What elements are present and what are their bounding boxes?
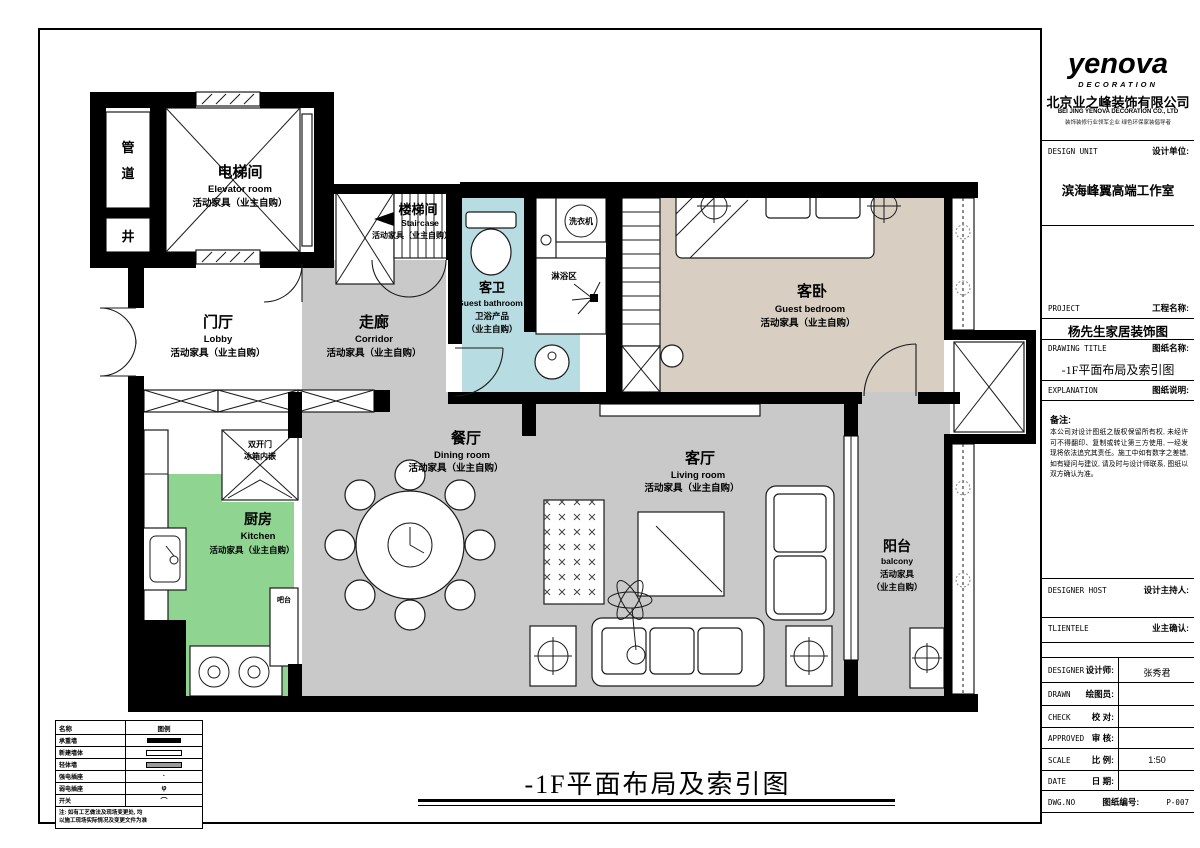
check-label-cn: 校 对: [1092, 711, 1114, 723]
label-washer: 洗衣机 [569, 216, 593, 226]
dwg-no-value: P-007 [1166, 798, 1189, 807]
note-text: 本公司对设计图纸之版权保留所有权, 未经许可不得翻印、复制或转让第三方使用, 一… [1050, 428, 1188, 481]
designer-label-en: DESIGNER [1048, 666, 1084, 675]
label-lobby-cn: 门厅 [203, 313, 233, 331]
balcony-unit [910, 628, 944, 688]
label-living-note: 活动家具（业主自购） [644, 482, 739, 494]
label-balcony-en: balcony [881, 556, 913, 566]
company-logo-sub: DECORATION [1042, 80, 1194, 89]
legend-swatch-glyph: φ [161, 785, 166, 792]
window-band-lower [952, 444, 974, 694]
drawing-title-label-en: DRAWING TITLE [1048, 344, 1107, 353]
legend-swatch-solid [147, 738, 181, 743]
elevator-door-top [196, 92, 260, 106]
approved-row: APPROVED 审 核: [1048, 732, 1114, 744]
floor-plan-svg: 管 道 井 电梯间 Elevator room 活动家具（业主自购） 楼梯间 S… [38, 28, 1040, 770]
label-balcony-note2: （业主自购） [871, 582, 922, 592]
drawn-label-en: DRAWN [1048, 690, 1071, 699]
clientele-row: TLIENTELE 业主确认: [1048, 622, 1189, 634]
label-stair-note: 活动家具（业主自购） [372, 230, 452, 240]
label-kitchen-cn: 厨房 [244, 511, 272, 527]
approved-label-en: APPROVED [1048, 734, 1084, 743]
company-name-en: BEI JING YENOVA DECORATION CO., LTD [1042, 109, 1194, 115]
designer-host-row: DESIGNER HOST 设计主持人: [1048, 584, 1189, 596]
drawing-title-value: -1F平面布局及索引图 [1042, 361, 1194, 378]
project-value: 杨先生家居装饰图 [1042, 321, 1194, 340]
approved-label-cn: 审 核: [1092, 732, 1114, 744]
legend-row: 开关 ⌒ [56, 794, 202, 806]
scale-label-cn: 比 例: [1092, 754, 1114, 766]
legend-header-symbol: 图例 [158, 723, 171, 733]
dwg-no-label-en: DWG.NO [1048, 798, 1075, 807]
legend-row: 承重墙 [56, 734, 202, 746]
designer-host-label-cn: 设计主持人: [1144, 584, 1189, 596]
elevator-door-bottom [196, 250, 260, 264]
project-label-en: PROJECT [1048, 304, 1080, 313]
scale-row: SCALE 比 例: [1048, 754, 1114, 766]
title-block: yenova DECORATION 北京业之峰装饰有限公司 BEI JING Y… [1040, 28, 1194, 824]
sheet-title-underline-thick [418, 799, 895, 802]
date-label-en: DATE [1048, 777, 1066, 786]
label-shaft-1: 管 [121, 140, 134, 155]
label-shaft-3: 井 [121, 229, 134, 244]
label-shower: 淋浴区 [551, 271, 577, 281]
legend-table: 名称 图例 承重墙 新建墙体 轻体墙 强电插座 · 弱电插座 φ 开关 ⌒ 注:… [55, 720, 203, 829]
label-elevator-note: 活动家具（业主自购） [192, 197, 287, 209]
legend-swatch-outline [146, 750, 182, 756]
legend-note-line1: 注: 如有工艺做法及现场变更处, 均 [59, 809, 199, 817]
label-bedroom-cn: 客卧 [796, 282, 827, 300]
speaker [530, 626, 576, 686]
label-stair-cn: 楼梯间 [398, 202, 437, 217]
clientele-label-en: TLIENTELE [1048, 624, 1089, 633]
legend-label: 新建墙体 [59, 748, 83, 757]
sheet-title: -1F平面布局及索引图 [420, 764, 895, 801]
label-kitchen-en: Kitchen [241, 531, 276, 542]
design-unit-row: DESIGN UNIT 设计单位: [1048, 145, 1189, 157]
label-lobby-en: Lobby [204, 334, 233, 345]
legend-swatch-gray [146, 762, 182, 768]
project-row: PROJECT 工程名称: [1048, 302, 1189, 314]
dwg-no-label-cn: 图纸编号: [1102, 796, 1139, 808]
label-living-cn: 客厅 [684, 449, 715, 467]
legend-row: 弱电插座 φ [56, 782, 202, 794]
legend-row: 强电插座 · [56, 770, 202, 782]
legend-label: 开关 [59, 796, 71, 805]
explanation-label-cn: 图纸说明: [1152, 384, 1189, 396]
label-lobby-note: 活动家具（业主自购） [170, 347, 265, 359]
legend-label: 强电插座 [59, 772, 83, 781]
stove-black-counter [140, 620, 186, 698]
drawn-row: DRAWN 绘图员: [1048, 688, 1114, 700]
project-label-cn: 工程名称: [1152, 302, 1189, 314]
designer-label-cn: 设计师: [1086, 664, 1114, 676]
bath-counter [536, 198, 556, 258]
legend-label: 弱电插座 [59, 784, 83, 793]
elevator-rail [302, 114, 312, 246]
kitchen-sink [142, 528, 186, 590]
label-dining-en: Dining room [434, 450, 490, 461]
basin [535, 345, 569, 379]
legend-row: 新建墙体 [56, 746, 202, 758]
label-fridge-1: 双开门 [248, 439, 272, 449]
designer-host-label-en: DESIGNER HOST [1048, 586, 1107, 595]
design-unit-value: 滨海峰翼高端工作室 [1042, 180, 1194, 199]
company-logo: yenova [1042, 50, 1194, 79]
design-unit-label-cn: 设计单位: [1152, 145, 1189, 157]
scale-value: 1:50 [1118, 755, 1196, 765]
label-bar: 吧台 [277, 595, 291, 604]
sheet-title-underline-thin [418, 805, 895, 806]
label-bathroom-cn: 客卫 [479, 280, 505, 295]
label-dining-cn: 餐厅 [451, 429, 481, 447]
design-unit-label-en: DESIGN UNIT [1048, 147, 1098, 156]
label-bedroom-note: 活动家具（业主自购） [760, 317, 855, 329]
square-rug [638, 512, 724, 596]
dwg-no-row: DWG.NO 图纸编号: P-007 [1048, 796, 1189, 808]
chair [661, 345, 683, 367]
drawing-title-row: DRAWING TITLE 图纸名称: [1048, 342, 1189, 354]
legend-note-line2: 以施工现场实际情况及变更文件为准 [59, 817, 199, 825]
label-corridor-cn: 走廊 [359, 313, 389, 331]
tv-cabinet [600, 404, 760, 416]
label-bathroom-en: Guest bathroom [457, 298, 523, 308]
label-kitchen-note: 活动家具（业主自购） [209, 545, 294, 555]
check-row: CHECK 校 对: [1048, 711, 1114, 723]
explanation-row: EXPLANATION 图纸说明: [1048, 384, 1189, 396]
label-balcony-cn: 阳台 [883, 538, 911, 554]
label-living-en: Living room [671, 470, 725, 481]
drawing-title-label-cn: 图纸名称: [1152, 342, 1189, 354]
label-corridor-en: Corridor [355, 334, 393, 345]
cooktop [190, 646, 282, 696]
company-tagline: 装饰装修行业领军企业 绿色环保家装倡导者 [1042, 118, 1194, 126]
label-stair-en: Staircase [401, 218, 439, 228]
window-band-upper [952, 198, 974, 330]
date-row: DATE 日 期: [1048, 775, 1114, 787]
label-shaft-2: 道 [121, 166, 134, 181]
duct-shaft [954, 342, 1024, 432]
explanation-label-en: EXPLANATION [1048, 386, 1098, 395]
clientele-label-cn: 业主确认: [1152, 622, 1189, 634]
label-fridge-2: 冰箱内嵌 [244, 451, 276, 461]
note-label: 备注: [1050, 413, 1071, 426]
speaker [786, 626, 832, 686]
designer-row: DESIGNER 设计师: [1048, 664, 1114, 676]
toilet-tank [466, 212, 516, 228]
label-elevator-en: Elevator room [208, 184, 272, 195]
legend-row: 轻体墙 [56, 758, 202, 770]
dining-table [325, 460, 495, 630]
label-bathroom-note2: （业主自购） [466, 324, 517, 334]
legend-swatch-glyph: · [163, 773, 165, 780]
date-label-cn: 日 期: [1092, 775, 1114, 787]
drawn-label-cn: 绘图员: [1086, 688, 1114, 700]
pipe-shaft-box [106, 112, 150, 208]
legend-label: 承重墙 [59, 736, 77, 745]
legend-header-row: 名称 图例 [56, 721, 202, 734]
shower-head [590, 294, 598, 302]
label-bathroom-note1: 卫浴产品 [475, 311, 510, 321]
label-balcony-note1: 活动家具 [880, 569, 915, 579]
toilet-bowl [471, 229, 511, 275]
scale-label-en: SCALE [1048, 756, 1071, 765]
label-elevator-cn: 电梯间 [217, 163, 262, 181]
designer-value: 张秀君 [1118, 666, 1196, 679]
legend-header-name: 名称 [59, 723, 72, 733]
check-label-en: CHECK [1048, 713, 1071, 722]
label-bedroom-en: Guest bedroom [775, 304, 845, 315]
label-dining-note: 活动家具（业主自购） [408, 462, 503, 474]
legend-note: 注: 如有工艺做法及现场变更处, 均 以施工现场实际情况及变更文件为准 [56, 806, 202, 828]
lobby-bay-windows [144, 390, 374, 412]
label-corridor-note: 活动家具（业主自购） [326, 347, 421, 359]
legend-swatch-glyph: ⌒ [161, 796, 168, 806]
legend-label: 轻体墙 [59, 760, 77, 769]
